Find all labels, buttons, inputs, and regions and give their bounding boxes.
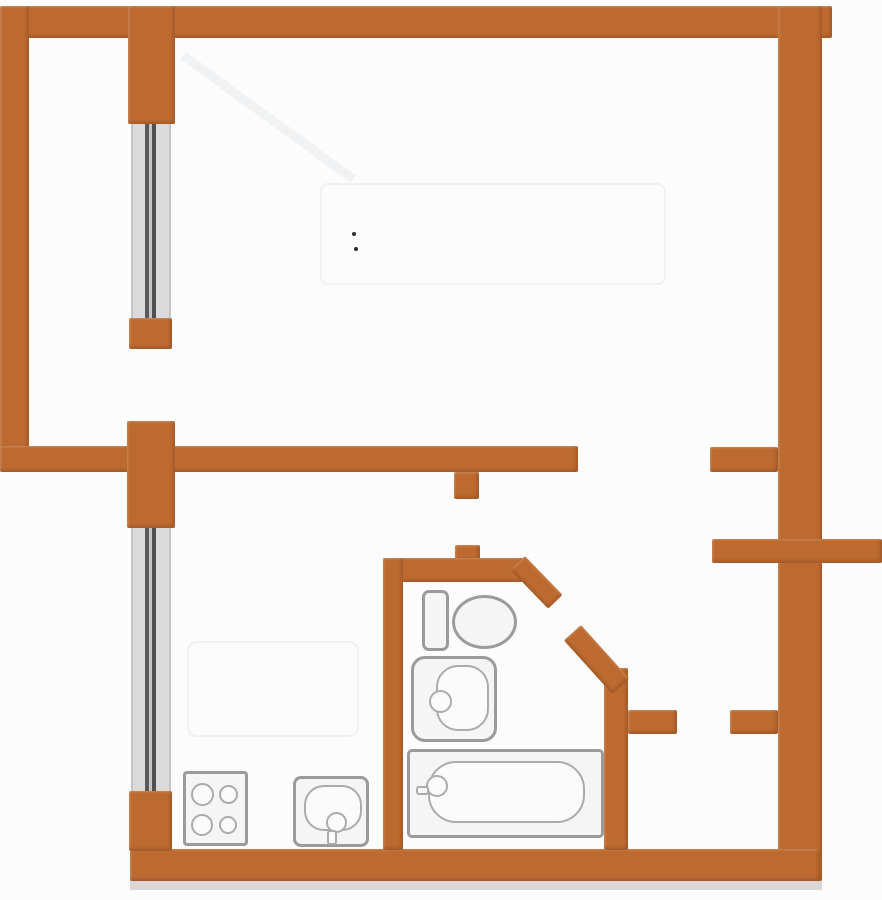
- stove: [183, 771, 248, 846]
- washbasin-drain: [429, 690, 452, 713]
- bathroom-top-wall: [383, 558, 523, 582]
- top-wall: [0, 6, 832, 38]
- window-pier-middle: [127, 421, 175, 528]
- landing-wall: [712, 539, 882, 563]
- bathroom-right-wall: [604, 668, 628, 850]
- bottom-wall: [130, 849, 820, 881]
- bathroom-left-wall: [383, 558, 403, 850]
- stove-burner-2: [219, 785, 238, 804]
- balcony-window-stub: [129, 318, 172, 349]
- ghost-mark-2: [354, 247, 358, 251]
- ghost-sunbeam: [181, 52, 356, 183]
- bathtub-faucet: [426, 775, 448, 797]
- kitchen-door-jamb-upper: [454, 472, 479, 499]
- entry-door-diagonal: [564, 625, 629, 694]
- toilet-tank: [422, 590, 449, 651]
- kitchen-window-lower-wall: [129, 791, 172, 851]
- balcony-window-glass: [145, 120, 156, 322]
- kitchen-sink-faucet: [327, 830, 337, 845]
- balcony-window: [131, 120, 171, 322]
- living-room-door-jamb: [710, 447, 778, 472]
- bathroom-door-jamb-diagonal: [511, 556, 563, 609]
- window-pier-upper: [128, 6, 175, 124]
- divider-wall: [0, 446, 578, 472]
- toilet-bowl: [452, 595, 517, 649]
- closet-jamb-left: [628, 710, 677, 734]
- ghost-kitchen-table: [187, 641, 359, 737]
- ghost-mark-1: [352, 232, 356, 236]
- stove-burner-4: [219, 816, 237, 834]
- room-balcony: [29, 38, 128, 446]
- bathtub-basin: [428, 761, 585, 823]
- right-wall: [778, 6, 822, 881]
- bathtub-faucet-stem: [416, 786, 429, 795]
- kitchen-window-glass: [145, 527, 156, 793]
- closet-jamb-right: [730, 710, 778, 734]
- kitchen-window: [131, 527, 171, 793]
- ghost-bed: [320, 183, 666, 285]
- room-closet: [628, 734, 778, 849]
- left-wall: [0, 6, 29, 472]
- floor-plan: [0, 0, 882, 900]
- stove-burner-1: [191, 783, 214, 806]
- stove-burner-3: [191, 814, 213, 836]
